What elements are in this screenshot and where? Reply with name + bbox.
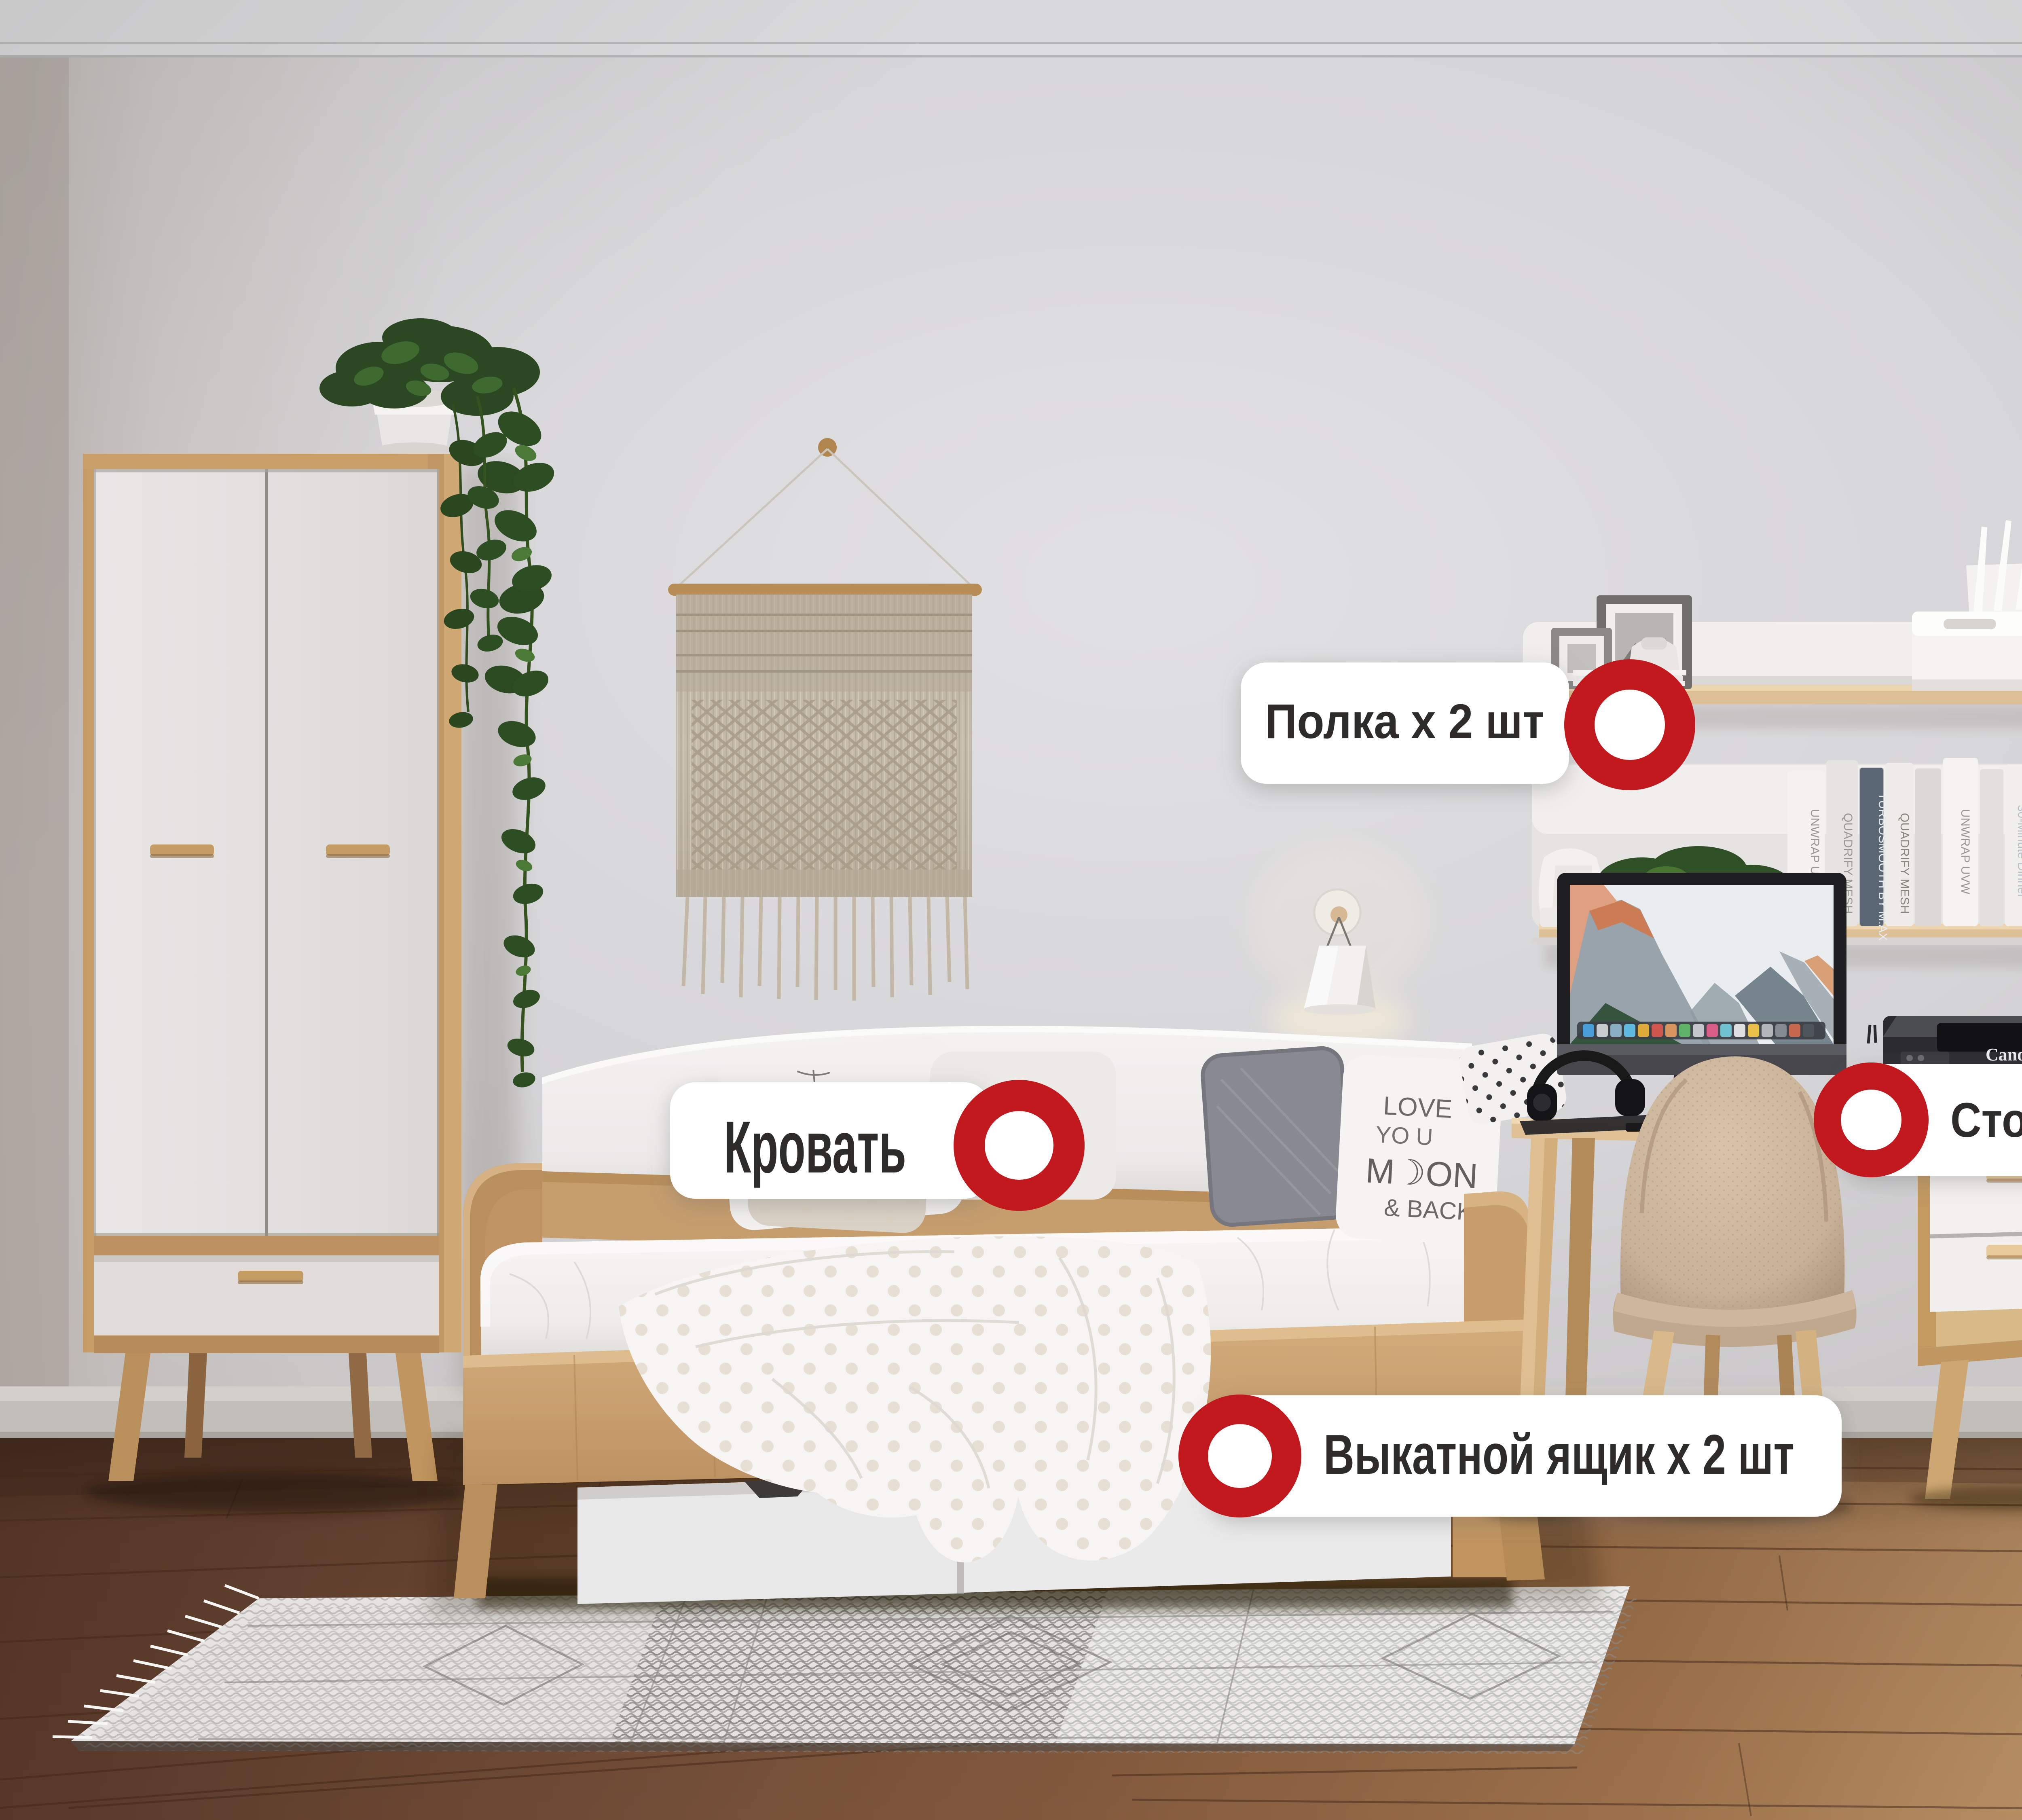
svg-text:M☽ON: M☽ON — [1364, 1151, 1478, 1196]
svg-text:UNWRAP UVW: UNWRAP UVW — [1959, 809, 1972, 895]
svg-text:30-Minute Dinner: 30-Minute Dinner — [2015, 805, 2022, 898]
svg-text:Canon: Canon — [1986, 1045, 2022, 1064]
svg-text:QUADRIFY MESH: QUADRIFY MESH — [1898, 813, 1911, 914]
svg-text:Полка х 2 шт: Полка х 2 шт — [1265, 694, 1544, 749]
svg-text:Выкатной ящик х 2 шт: Выкатной ящик х 2 шт — [1324, 1423, 1794, 1486]
svg-text:YO U: YO U — [1375, 1121, 1434, 1150]
svg-text:TURBOSMOOTH BY M.AX: TURBOSMOOTH BY M.AX — [1876, 793, 1889, 941]
svg-text:& BACK: & BACK — [1383, 1194, 1474, 1225]
svg-text:LOVE: LOVE — [1383, 1091, 1453, 1124]
svg-text:Кровать: Кровать — [724, 1106, 906, 1188]
svg-text:Стол письменный: Стол письменный — [1950, 1092, 2022, 1147]
